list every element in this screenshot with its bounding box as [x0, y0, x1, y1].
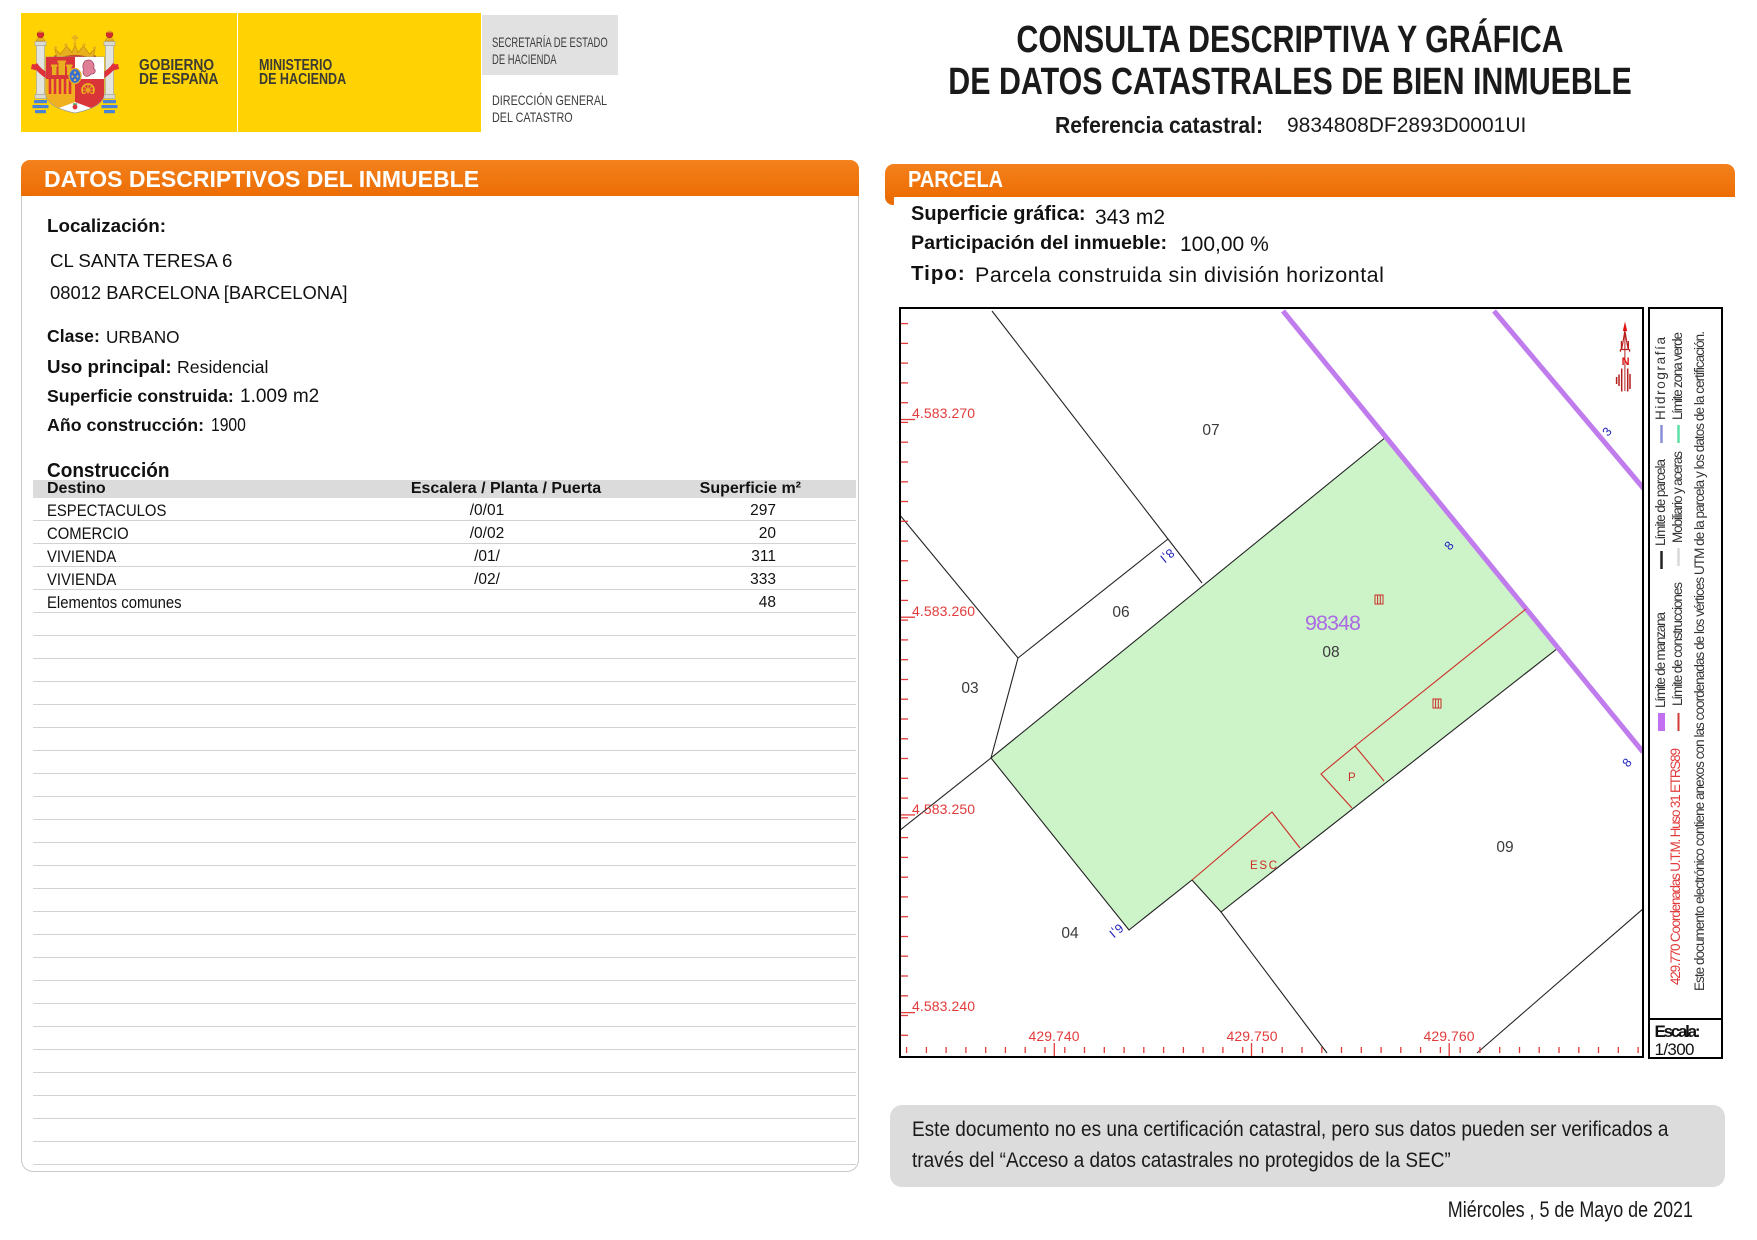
svg-text:429.760: 429.760 — [1424, 1028, 1475, 1044]
svg-text:Límite de parcela: Límite de parcela — [1653, 459, 1668, 546]
svg-text:4.583.240: 4.583.240 — [912, 998, 975, 1014]
svg-text:4.583.270: 4.583.270 — [912, 405, 975, 421]
svg-text:Escala:: Escala: — [1655, 1022, 1701, 1041]
svg-text:Límite de manzana: Límite de manzana — [1653, 612, 1668, 708]
svg-text:ESC: ESC — [1250, 860, 1277, 872]
svg-text:03: 03 — [961, 680, 978, 697]
svg-text:06: 06 — [1112, 604, 1129, 621]
svg-text:Límite de construcciones: Límite de construcciones — [1670, 582, 1685, 706]
svg-text:Mobiliario y aceras: Mobiliario y aceras — [1670, 451, 1685, 543]
svg-text:4.583.260: 4.583.260 — [912, 603, 975, 619]
svg-text:6,I: 6,I — [1106, 921, 1126, 941]
svg-text:08: 08 — [1322, 644, 1339, 661]
svg-text:N: N — [1622, 356, 1630, 368]
svg-text:Este documento electrónico con: Este documento electrónico contiene anex… — [1692, 331, 1707, 991]
svg-text:09: 09 — [1496, 839, 1513, 856]
svg-text:98348: 98348 — [1305, 611, 1361, 635]
svg-text:Hidrografía: Hidrografía — [1653, 337, 1668, 420]
svg-text:1/300: 1/300 — [1655, 1040, 1695, 1059]
svg-text:429.770 Coordenadas U.T.M. Hus: 429.770 Coordenadas U.T.M. Huso 31 ETRS8… — [1668, 748, 1683, 985]
svg-text:4.583.250: 4.583.250 — [912, 801, 975, 817]
svg-text:Límite zona verde: Límite zona verde — [1670, 332, 1685, 420]
svg-text:P: P — [1348, 772, 1356, 784]
svg-text:04: 04 — [1061, 925, 1079, 942]
svg-text:429.740: 429.740 — [1029, 1028, 1080, 1044]
svg-text:8,I: 8,I — [1157, 546, 1177, 566]
svg-text:429.750: 429.750 — [1227, 1028, 1278, 1044]
svg-text:8: 8 — [1620, 756, 1635, 770]
svg-text:07: 07 — [1202, 422, 1219, 439]
